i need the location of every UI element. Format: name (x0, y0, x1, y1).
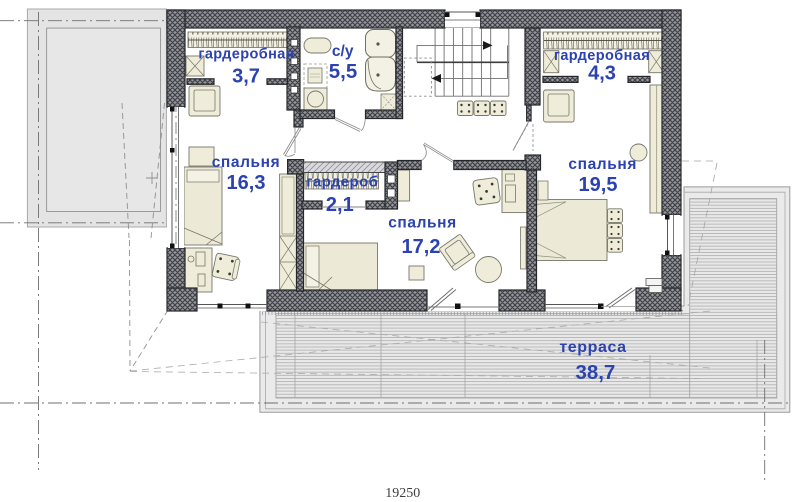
svg-text:спальня: спальня (568, 156, 637, 173)
svg-text:16,3: 16,3 (227, 172, 266, 194)
svg-text:17,2: 17,2 (402, 236, 441, 258)
svg-text:гардероб: гардероб (306, 174, 378, 191)
svg-text:19,5: 19,5 (579, 174, 618, 196)
svg-text:4,3: 4,3 (588, 63, 616, 85)
svg-text:спальня: спальня (212, 154, 281, 171)
svg-text:терраса: терраса (559, 339, 626, 356)
svg-text:3,7: 3,7 (232, 66, 260, 88)
svg-text:спальня: спальня (388, 215, 457, 232)
svg-text:19250: 19250 (385, 486, 420, 501)
svg-text:5,5: 5,5 (329, 60, 358, 83)
svg-text:с/у: с/у (332, 43, 354, 60)
svg-text:гардеробная: гардеробная (198, 47, 294, 63)
svg-text:2,1: 2,1 (326, 194, 354, 216)
svg-text:38,7: 38,7 (575, 361, 615, 384)
